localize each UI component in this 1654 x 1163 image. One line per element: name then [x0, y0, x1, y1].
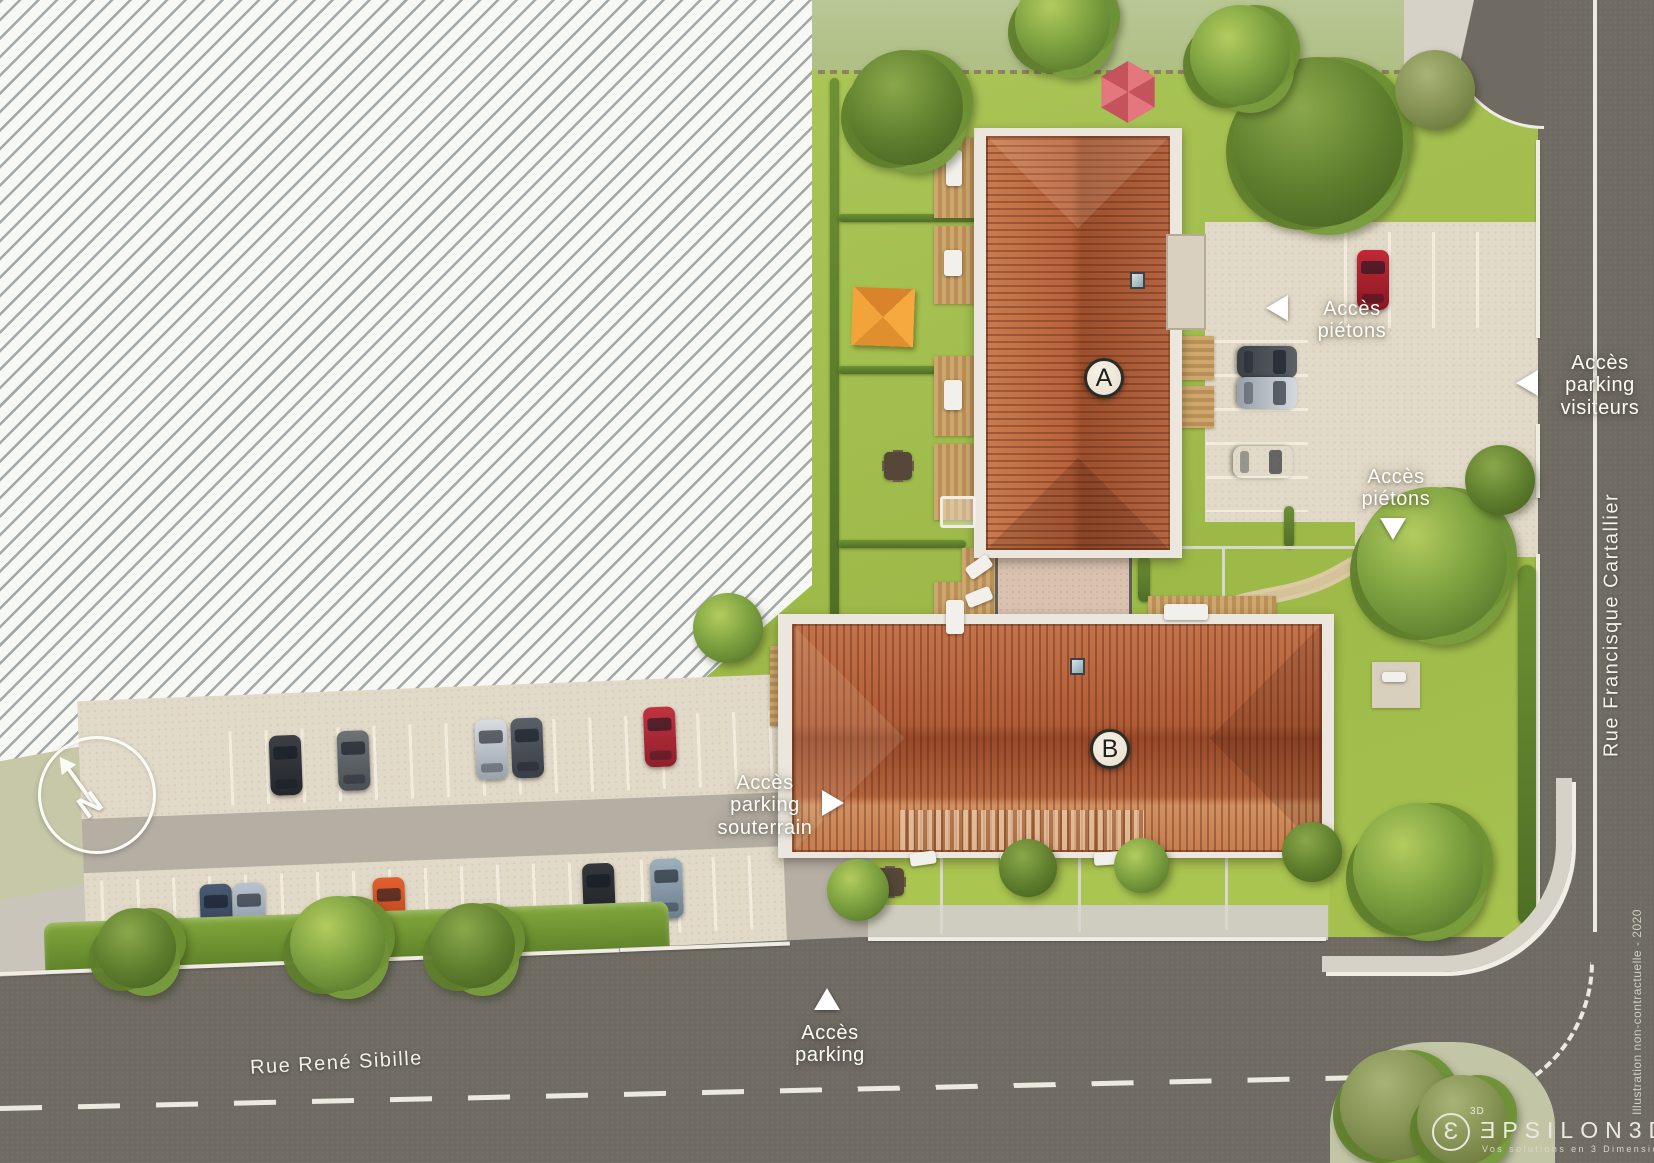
terrace-b-east	[1372, 662, 1420, 708]
epsilon3d-logo-icon: Ɛ	[1432, 1113, 1470, 1151]
patio-furniture-2	[944, 250, 962, 276]
car-gray	[336, 730, 370, 791]
car-darkgray	[510, 717, 544, 778]
label-acces-pietons-east: Accès piétons	[1362, 466, 1431, 511]
tree-12	[430, 903, 515, 988]
sofa-terrace-b	[1164, 604, 1208, 620]
skylight-b	[1070, 658, 1085, 675]
curb-right-1	[1536, 140, 1540, 338]
tree-10	[96, 908, 176, 988]
garden-fence-4	[1078, 852, 1081, 932]
building-b-badge: B	[1090, 729, 1130, 769]
shrub-1	[827, 859, 889, 921]
south-sidewalk-strip	[868, 905, 1328, 940]
pergola-table	[940, 496, 976, 528]
tree-5	[1395, 50, 1475, 130]
skylight-a	[1130, 272, 1145, 289]
arrow-right-icon-parking-souterrain	[822, 790, 844, 816]
building-a-letter: A	[1096, 364, 1113, 393]
hedge-walkway	[1284, 506, 1294, 548]
garden-fence-3	[940, 852, 943, 934]
label-acces-parking-south: Accès parking	[795, 1022, 865, 1067]
shrub-5	[693, 593, 763, 663]
building-a-annex	[1166, 234, 1206, 330]
tree-8	[1353, 803, 1483, 933]
compass: N	[38, 736, 156, 854]
hedge-row-3	[838, 540, 966, 548]
tree-4	[1190, 5, 1290, 105]
building-a-badge: A	[1084, 358, 1124, 398]
car-red	[643, 706, 677, 767]
shrub-4	[1282, 822, 1342, 882]
arrow-left-icon-parking-visiteurs	[1516, 370, 1538, 396]
tree-7	[1465, 445, 1535, 515]
road-right-line	[1593, 0, 1597, 932]
label-acces-parking-visiteurs: Accès parking visiteurs	[1561, 352, 1640, 419]
curb-right-2	[1536, 424, 1540, 498]
street-name-right: Rue Francisque Cartallier	[1601, 493, 1624, 757]
garden-table-1	[884, 452, 912, 480]
label-acces-parking-souterrain: Accès parking souterrain	[718, 772, 813, 839]
building-b-letter: B	[1102, 735, 1119, 764]
shrub-2	[999, 839, 1057, 897]
hatched-adjacent-parcel	[0, 0, 830, 780]
garden-fence-5	[1225, 850, 1228, 930]
logo-wordmark: ƎPSILON3D	[1480, 1117, 1654, 1144]
tree-1	[848, 50, 963, 165]
patio-furniture-4	[946, 600, 964, 634]
logo-sup-text: 3D	[1470, 1106, 1485, 1117]
visitor-car-gray	[1237, 346, 1297, 378]
patio-furniture-1	[946, 150, 962, 186]
arrow-left-icon-pietons-north	[1266, 295, 1288, 321]
label-acces-pietons-north: Accès piétons	[1318, 298, 1387, 343]
site-plan: A B N Accès piétons Accès parking visite…	[0, 0, 1654, 1163]
visitor-car-navy	[1233, 446, 1293, 478]
logo-glyph: Ɛ	[1444, 1118, 1459, 1146]
patio-furniture-3	[944, 380, 962, 410]
arrow-up-icon-parking-south	[814, 988, 840, 1010]
disclaimer-text: Illustration non-contractuelle - 2020	[1630, 909, 1644, 1115]
car-black	[269, 735, 303, 796]
car-silver	[474, 719, 508, 780]
arrow-down-icon-pietons-east	[1380, 518, 1406, 540]
bench-east	[1382, 672, 1406, 682]
tree-11	[290, 896, 385, 991]
building-a-roof	[986, 136, 1170, 550]
visitor-car-silver	[1237, 377, 1297, 409]
epsilon3d-logo: Ɛ 3D ƎPSILON3D Vos solutions en 3 Dimens…	[1408, 1100, 1648, 1160]
logo-tagline: Vos solutions en 3 Dimensions	[1482, 1144, 1654, 1154]
curb-bottom-east	[868, 937, 1326, 941]
compass-north-label: N	[71, 784, 110, 826]
shrub-3	[1114, 838, 1169, 893]
orange-gazebo	[851, 287, 915, 347]
